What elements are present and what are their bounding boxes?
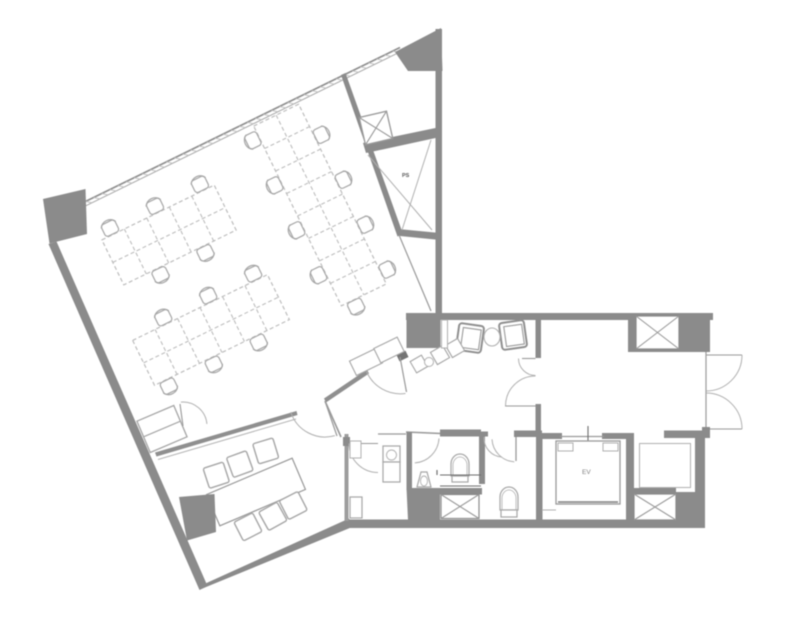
- svg-text:EV: EV: [582, 469, 591, 476]
- svg-text:PS: PS: [402, 173, 410, 179]
